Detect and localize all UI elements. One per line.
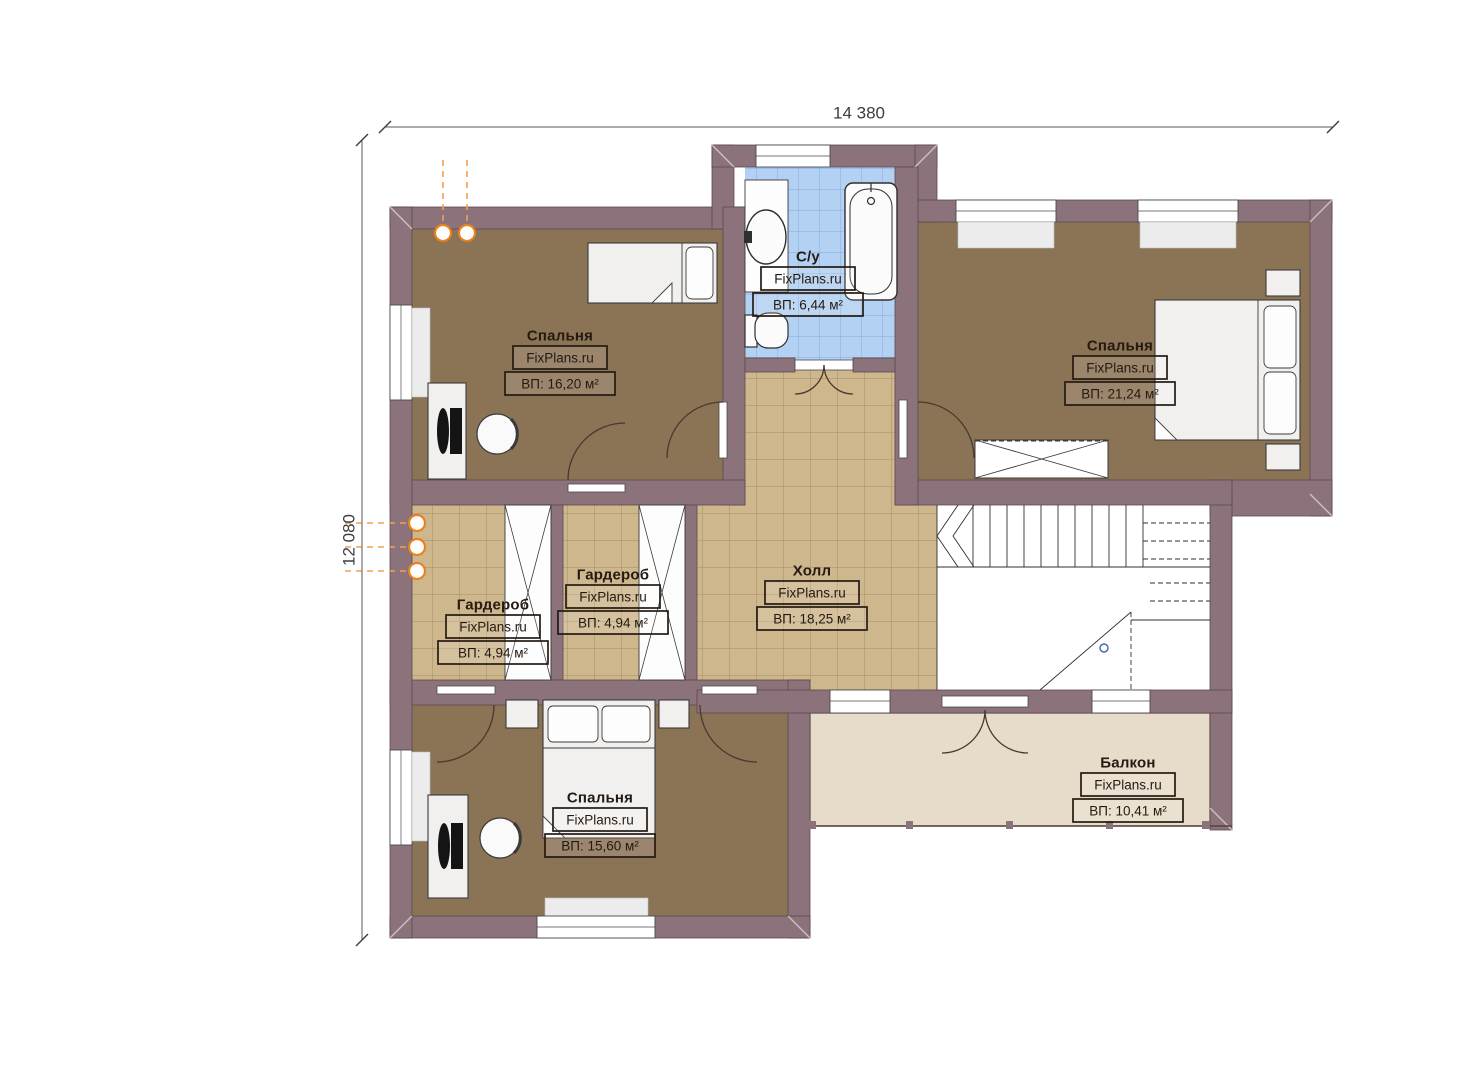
window <box>390 750 430 845</box>
watermark: FixPlans.ru <box>526 351 594 366</box>
dresser <box>975 440 1108 478</box>
window <box>537 898 655 938</box>
watermark: FixPlans.ru <box>1094 778 1162 793</box>
watermark: FixPlans.ru <box>566 813 634 828</box>
desk <box>428 383 466 479</box>
window <box>1092 690 1150 713</box>
watermark: FixPlans.ru <box>774 272 842 287</box>
watermark: FixPlans.ru <box>1086 361 1154 376</box>
nightstand <box>659 700 689 728</box>
window <box>956 200 1056 248</box>
room-name: Гардероб <box>577 567 650 584</box>
floor-plan-page: Спальня FixPlans.ru ВП: 16,20 м² С/у Fix… <box>0 0 1473 1080</box>
room-name: Спальня <box>1087 338 1153 355</box>
room-area: ВП: 6,44 м² <box>773 298 844 313</box>
desk <box>428 795 468 898</box>
stairwell-floor <box>937 505 1210 690</box>
room-area: ВП: 10,41 м² <box>1089 804 1167 819</box>
floor-plan-drawing: Спальня FixPlans.ru ВП: 16,20 м² С/у Fix… <box>0 0 1473 1080</box>
dimension-width-label: 14 380 <box>833 104 885 123</box>
window <box>830 690 890 713</box>
room-area: ВП: 4,94 м² <box>578 616 649 631</box>
watermark: FixPlans.ru <box>459 620 527 635</box>
watermark: FixPlans.ru <box>778 586 846 601</box>
window <box>1138 200 1238 248</box>
room-name: Спальня <box>567 790 633 807</box>
watermark: FixPlans.ru <box>579 590 647 605</box>
room-area: ВП: 16,20 м² <box>521 377 599 392</box>
chair <box>480 818 520 858</box>
room-name: Холл <box>793 563 831 580</box>
dimension-height-label: 12 080 <box>340 514 359 566</box>
sink-tap <box>744 231 752 243</box>
dimension-left: 12 080 <box>340 134 369 946</box>
room-name: С/у <box>796 249 820 266</box>
dimension-top: 14 380 <box>379 104 1339 134</box>
nightstand <box>1266 270 1300 296</box>
window <box>390 305 430 400</box>
toilet <box>745 313 788 348</box>
room-area: ВП: 15,60 м² <box>561 839 639 854</box>
room-area: ВП: 18,25 м² <box>773 612 851 627</box>
room-area: ВП: 4,94 м² <box>458 646 529 661</box>
nightstand <box>506 700 538 728</box>
bed-single <box>588 243 717 303</box>
chair <box>477 414 517 454</box>
room-name: Спальня <box>527 328 593 345</box>
stair-pole-marker <box>1100 644 1108 652</box>
room-name: Гардероб <box>457 597 530 614</box>
nightstand <box>1266 444 1300 470</box>
room-name: Балкон <box>1100 755 1155 772</box>
room-area: ВП: 21,24 м² <box>1081 387 1159 402</box>
window <box>756 145 830 167</box>
bed-double <box>1155 300 1300 440</box>
